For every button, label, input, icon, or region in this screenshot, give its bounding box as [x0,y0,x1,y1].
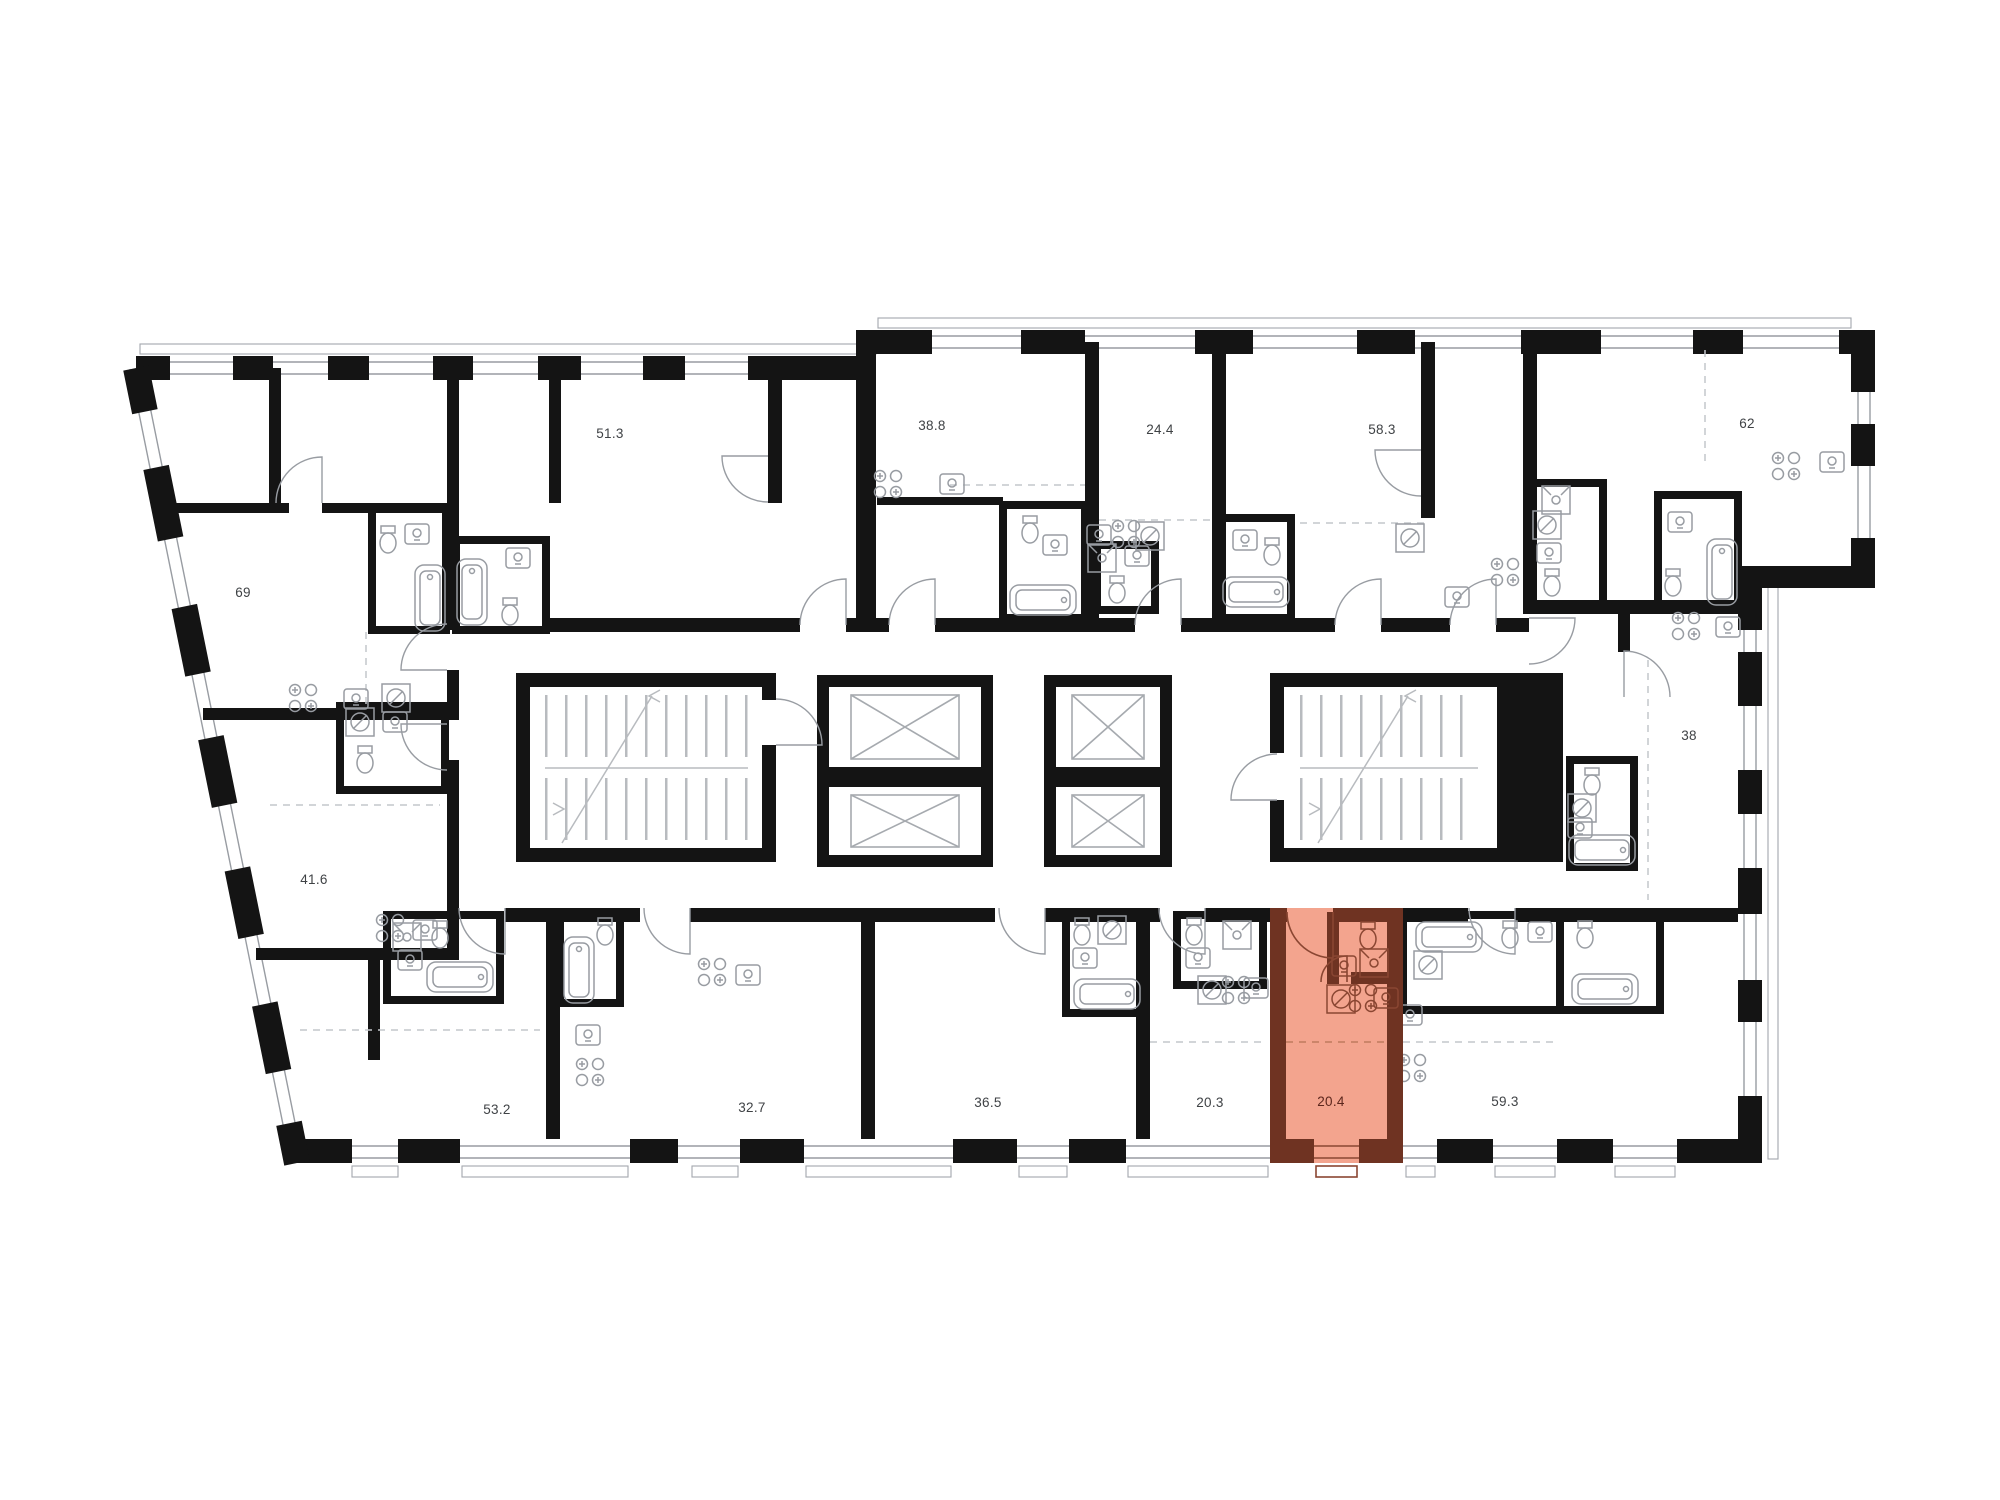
unit-area-label-36.5: 36.5 [974,1095,1001,1110]
unit-area-label-38: 38 [1681,728,1697,743]
floor-plan: 20.4 69 51.3 38.8 24.4 58.3 62 41.6 38 5… [0,0,2000,1500]
unit-area-label-41.6: 41.6 [300,872,327,887]
unit-area-label-62: 62 [1739,416,1755,431]
unit-area-label-69: 69 [235,585,251,600]
facade-windows [130,318,1872,1177]
unit-area-label-53.2: 53.2 [483,1102,510,1117]
stairwell-right [1300,690,1478,843]
floor-plan-canvas: 20.4 69 51.3 38.8 24.4 58.3 62 41.6 38 5… [0,0,2000,1500]
elevator-bank [823,681,1166,861]
unit-area-label-38.8: 38.8 [918,418,945,433]
unit-area-label-20.4[interactable]: 20.4 [1317,1094,1345,1109]
unit-area-label-32.7: 32.7 [738,1100,765,1115]
unit-area-label-59.3: 59.3 [1491,1094,1518,1109]
unit-area-label-51.3: 51.3 [596,426,623,441]
unit-area-label-20.3: 20.3 [1196,1095,1223,1110]
selected-apartment[interactable]: 20.4 [1270,908,1403,1177]
selected-apartment-sill [1316,1166,1357,1177]
stairwell-left [545,690,748,843]
unit-area-label-24.4: 24.4 [1146,422,1174,437]
unit-area-label-58.3: 58.3 [1368,422,1395,437]
outer-walls [136,330,1875,1163]
